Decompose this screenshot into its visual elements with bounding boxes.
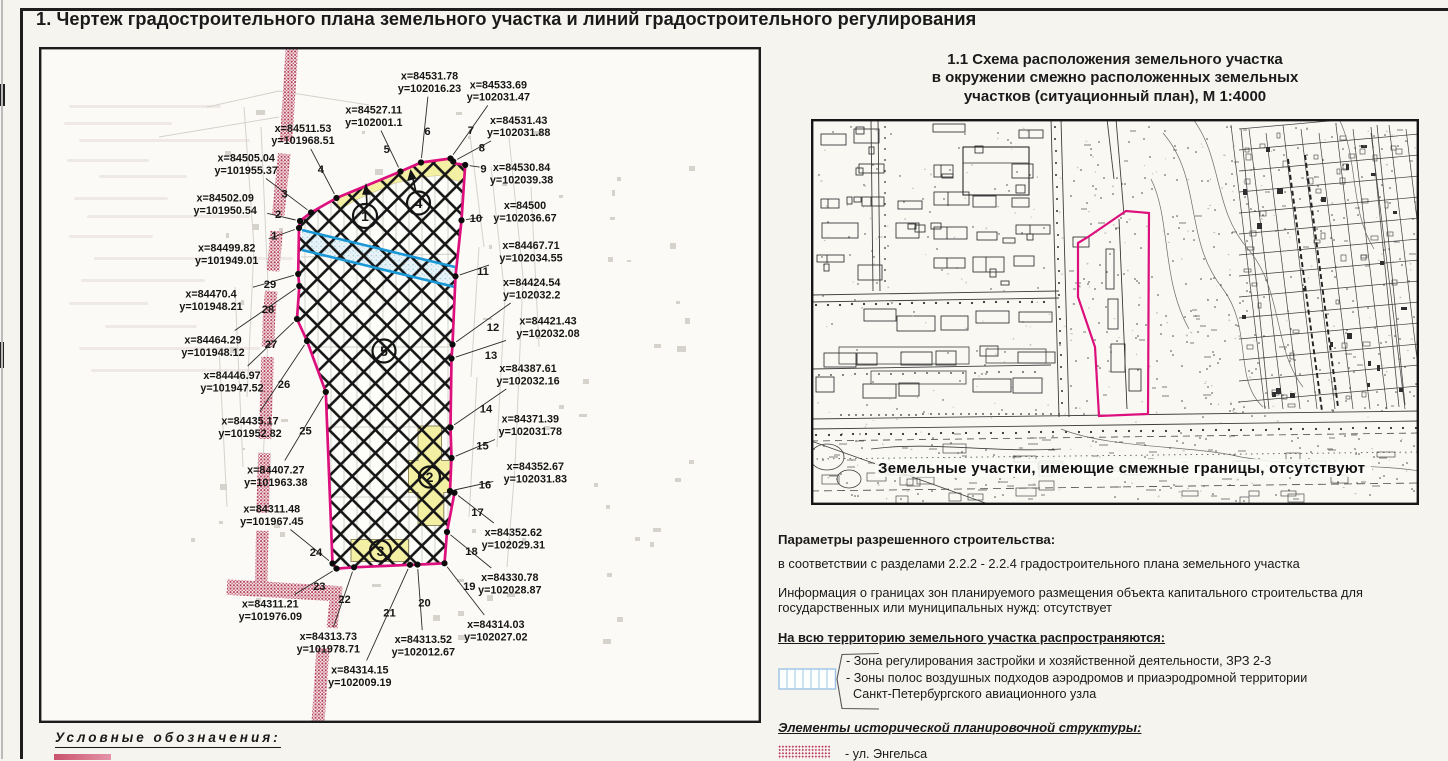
svg-text:27: 27 [265,339,277,351]
svg-text:3: 3 [281,189,287,201]
svg-text:6: 6 [424,126,430,138]
svg-text:13: 13 [485,350,497,362]
svg-text:x=84314.15y=102009.19: x=84314.15y=102009.19 [328,664,391,688]
svg-text:x=84311.48y=101967.45: x=84311.48y=101967.45 [240,503,303,527]
svg-text:24: 24 [310,547,323,559]
svg-text:x=84511.53y=101968.51: x=84511.53y=101968.51 [271,123,334,147]
svg-text:x=84505.04y=101955.37: x=84505.04y=101955.37 [215,152,278,176]
svg-text:26: 26 [278,379,290,391]
svg-text:x=84499.82y=101949.01: x=84499.82y=101949.01 [195,242,258,266]
svg-text:20: 20 [418,598,430,610]
svg-text:x=84435.17y=101952.82: x=84435.17y=101952.82 [218,415,281,439]
svg-text:x=84527.11y=102001.1: x=84527.11y=102001.1 [345,105,402,129]
svg-text:1: 1 [271,231,277,243]
svg-text:Земельные участки, имеющие сме: Земельные участки, имеющие смежные грани… [878,460,1365,477]
svg-text:23: 23 [313,581,325,593]
svg-text:18: 18 [465,546,477,558]
svg-text:x=84467.71y=102034.55: x=84467.71y=102034.55 [499,240,562,264]
svg-text:12: 12 [487,322,499,334]
svg-text:21: 21 [383,608,395,620]
svg-text:x=84533.69y=102031.47: x=84533.69y=102031.47 [467,79,530,103]
svg-text:x=84530.84y=102039.38: x=84530.84y=102039.38 [490,162,553,186]
svg-text:10: 10 [470,213,482,225]
svg-text:x=84531.43y=102031.88: x=84531.43y=102031.88 [487,115,550,139]
svg-text:x=84371.39y=102031.78: x=84371.39y=102031.78 [499,413,562,437]
svg-text:x=84387.61y=102032.16: x=84387.61y=102032.16 [496,363,559,387]
svg-text:29: 29 [264,279,276,291]
svg-text:11: 11 [477,266,489,278]
svg-text:x=84352.67y=102031.83: x=84352.67y=102031.83 [504,461,567,485]
svg-text:2: 2 [275,209,281,221]
svg-text:25: 25 [299,426,311,438]
svg-text:x=84531.78y=102016.23: x=84531.78y=102016.23 [398,71,461,95]
svg-text:16: 16 [479,480,491,492]
svg-text:5: 5 [384,144,390,156]
svg-text:9: 9 [480,163,486,175]
svg-text:15: 15 [476,441,488,453]
svg-text:7: 7 [468,125,474,137]
svg-text:22: 22 [338,594,350,606]
svg-text:28: 28 [262,304,274,316]
svg-text:1: 1 [361,208,369,224]
svg-text:x=84407.27y=101963.38: x=84407.27y=101963.38 [244,464,307,488]
svg-text:5: 5 [380,343,388,359]
svg-text:x=84313.73y=101978.71: x=84313.73y=101978.71 [297,631,360,655]
svg-text:2: 2 [426,469,434,485]
svg-text:3: 3 [377,543,385,559]
svg-text:x=84470.4y=101948.21: x=84470.4y=101948.21 [179,288,242,312]
svg-text:x=84424.54y=102032.2: x=84424.54y=102032.2 [503,277,560,301]
svg-text:x=84421.43y=102032.08: x=84421.43y=102032.08 [516,315,579,339]
svg-text:x=84502.09y=101950.54: x=84502.09y=101950.54 [194,192,257,216]
svg-text:8: 8 [479,142,485,154]
svg-text:x=84446.97y=101947.52: x=84446.97y=101947.52 [200,370,263,394]
svg-text:x=84311.21y=101976.09: x=84311.21y=101976.09 [239,598,302,622]
svg-text:x=84330.78y=102028.87: x=84330.78y=102028.87 [478,572,541,596]
svg-text:x=84352.62y=102029.31: x=84352.62y=102029.31 [482,527,545,551]
svg-text:4: 4 [415,195,423,211]
svg-text:4: 4 [318,164,325,176]
svg-text:x=84313.52y=102012.67: x=84313.52y=102012.67 [392,634,455,658]
svg-text:x=84464.29y=101948.12: x=84464.29y=101948.12 [181,334,244,358]
svg-text:17: 17 [471,507,483,519]
svg-text:14: 14 [480,404,493,416]
svg-text:x=84314.03y=102027.02: x=84314.03y=102027.02 [464,619,527,643]
svg-text:19: 19 [463,581,475,593]
